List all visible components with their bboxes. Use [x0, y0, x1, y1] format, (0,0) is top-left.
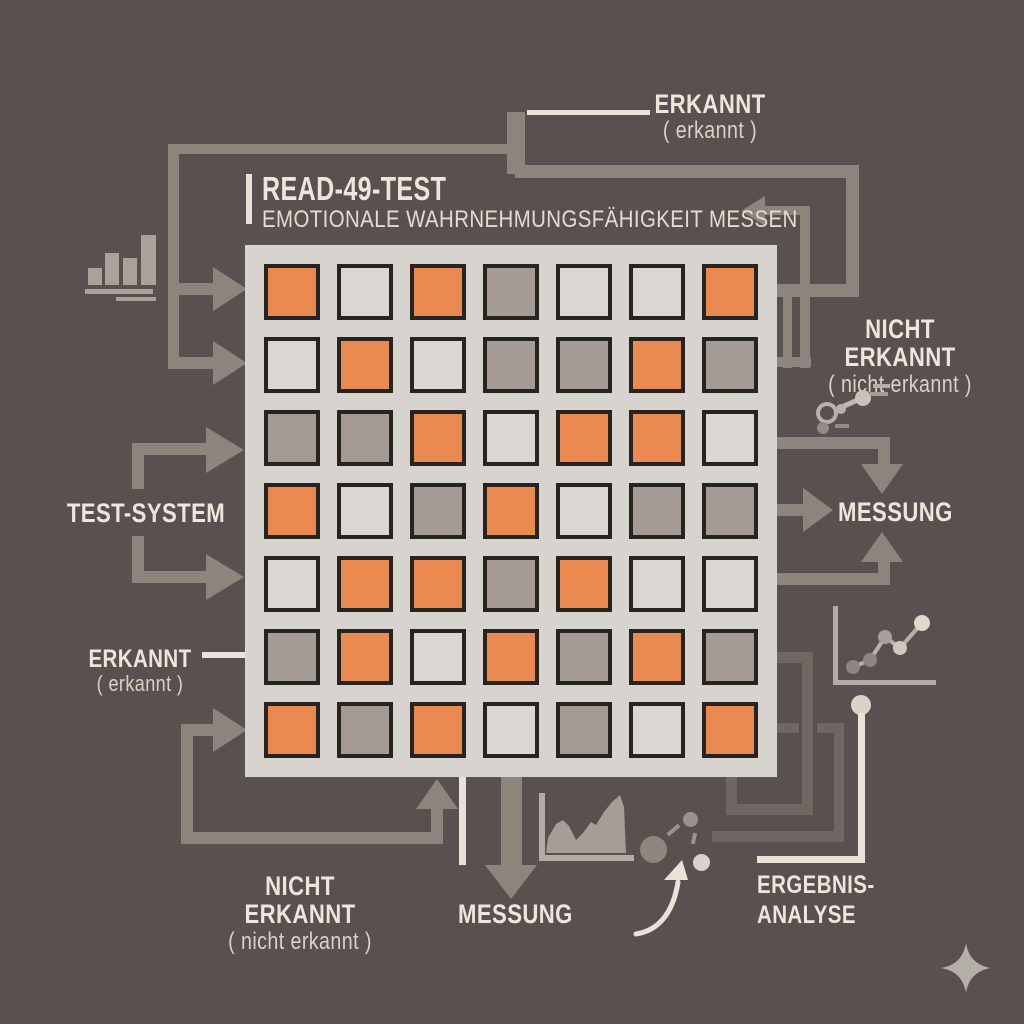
scatter-link-dot-big	[855, 390, 871, 406]
grid-cell-r1c6-light	[629, 264, 685, 320]
big-down-arrow-head	[485, 865, 537, 899]
bar-chart-bar	[105, 253, 119, 285]
connector-right-outer-vertical	[846, 165, 859, 297]
area-chart-icon	[536, 790, 636, 866]
arrow-into-grid-row1-head	[213, 267, 247, 311]
bar-chart-bar	[88, 268, 102, 285]
arrow-into-grid-row1-shaft	[179, 283, 213, 295]
grid-cell-r2c3-light	[410, 337, 466, 393]
molecule-bond-dash	[666, 824, 680, 837]
loop-arrow-into-grid-bottom-shaft	[431, 805, 443, 844]
title-block: READ-49-TEST EMOTIONALE WAHRNEHMUNGSFÄHI…	[262, 172, 782, 232]
molecule-icon	[636, 806, 716, 876]
grid-cell-r3c1-gray	[264, 410, 320, 466]
infographic-canvas: ERKANNT ( erkannt ) READ-49-TEST EMOTION…	[0, 0, 1024, 1024]
molecule-dot-big	[640, 836, 667, 863]
line-chart-icon	[833, 606, 943, 696]
grid-cell-r6c4-orange	[483, 629, 539, 685]
arrow-up-to-messung-head	[861, 532, 903, 562]
scatter-ring-dot	[816, 402, 838, 424]
grid-cell-r1c4-gray	[483, 264, 539, 320]
grid-cell-r6c7-gray	[702, 629, 758, 685]
label-erkannt-top-sub: ( erkannt )	[628, 118, 792, 143]
label-erkannt-left-main: ERKANNT	[58, 646, 222, 672]
label-messung-right: MESSUNG	[838, 498, 998, 526]
grid-cell-r7c3-orange	[410, 702, 466, 758]
grid-cell-r3c3-orange	[410, 410, 466, 466]
arrow-down-to-messung-head	[861, 464, 903, 494]
grid-cell-r7c6-light	[629, 702, 685, 758]
label-erkannt-left-sub: ( erkannt )	[58, 672, 222, 695]
label-ergebnis-line1: ERGEBNIS-	[757, 872, 937, 898]
grid-cell-r3c6-orange	[629, 410, 685, 466]
grid-cell-r5c6-light	[629, 556, 685, 612]
grid-cell-r6c6-orange	[629, 629, 685, 685]
label-test-system: TEST-SYSTEM	[46, 499, 246, 527]
connector-p2-top-a	[777, 723, 799, 733]
grid-cell-r4c3-gray	[410, 483, 466, 539]
label-erkannt-top-main: ERKANNT	[628, 90, 792, 118]
grid-cell-r2c6-orange	[629, 337, 685, 393]
grid-cell-r5c7-light	[702, 556, 758, 612]
scatter-dash	[835, 424, 849, 428]
grid-cell-r1c1-orange	[264, 264, 320, 320]
molecule-dot-light	[693, 854, 710, 871]
label-nicht-erkannt-right-main: NICHT ERKANNT	[818, 315, 982, 372]
ergebnis-connector-dot	[851, 695, 871, 715]
big-down-arrow-shaft	[501, 777, 522, 867]
bracket-upper-horizontal	[132, 443, 206, 455]
label-erkannt-top: ERKANNT ( erkannt )	[610, 90, 810, 144]
erkannt-left-leader-line	[202, 652, 246, 658]
connector-messung-top-horizontal	[777, 437, 890, 449]
grid-cell-r5c4-gray	[483, 556, 539, 612]
grid-cell-r2c4-gray	[483, 337, 539, 393]
loop-horizontal	[181, 832, 443, 844]
scatter-solid-dot	[817, 422, 829, 434]
connector-messung-top-vertical	[878, 437, 890, 467]
scatter-dash-top	[873, 384, 890, 388]
label-nicht-erkannt-bottom: NICHT ERKANNT ( nicht erkannt )	[190, 872, 410, 954]
grid-cell-r2c7-gray	[702, 337, 758, 393]
label-ergebnis-analyse: ERGEBNIS- ANALYSE	[757, 872, 977, 929]
label-ergebnis-line2: ANALYSE	[757, 902, 937, 928]
perception-grid	[245, 245, 777, 777]
label-nicht-erkannt-bottom-main: NICHT ERKANNT	[210, 872, 390, 929]
scatter-dash-mid	[870, 392, 888, 396]
grid-cell-r1c7-orange	[702, 264, 758, 320]
grid-cell-r4c1-orange	[264, 483, 320, 539]
grid-cell-r4c6-gray	[629, 483, 685, 539]
connector-messung-bottom-horizontal	[777, 573, 890, 585]
grid-cell-r2c5-gray	[556, 337, 612, 393]
bracket-upper-arrowhead	[206, 427, 244, 473]
arrow-into-grid-row2-head	[213, 341, 247, 385]
bracket-lower-horizontal	[132, 571, 206, 583]
arrow-right-to-messung-head	[803, 488, 833, 532]
ergebnis-connector-horizontal	[757, 856, 865, 863]
sparkle-icon	[940, 942, 992, 994]
arrow-into-grid-row2-shaft	[179, 357, 213, 369]
arrow-right-to-messung-shaft	[777, 504, 803, 516]
grid-cell-r5c1-light	[264, 556, 320, 612]
grid-cell-r5c2-orange	[337, 556, 393, 612]
grid-cell-r6c1-gray	[264, 629, 320, 685]
grid-cell-r7c7-orange	[702, 702, 758, 758]
connector-p1-bottom	[726, 804, 813, 815]
loop-vertical	[181, 724, 193, 844]
bar-chart-underline	[116, 297, 156, 301]
grid-cell-r5c3-orange	[410, 556, 466, 612]
label-messung-bottom-text: MESSUNG	[458, 900, 622, 928]
connector-topleft-vertical	[168, 144, 179, 369]
bracket-lower-arrowhead	[206, 554, 244, 600]
grid-cell-r7c4-light	[483, 702, 539, 758]
grid-cell-r2c1-light	[264, 337, 320, 393]
page-subtitle: EMOTIONALE WAHRNEHMUNGSFÄHIGKEIT MESSEN	[262, 207, 704, 232]
loop-arrow-into-grid-left-head	[213, 708, 247, 752]
connector-p1-stub	[726, 777, 737, 815]
label-test-system-text: TEST-SYSTEM	[64, 499, 228, 527]
molecule-dot-small	[683, 812, 698, 827]
connector-p2-vertical	[834, 723, 844, 842]
title-accent-bar	[246, 174, 252, 224]
ergebnis-connector-vertical	[858, 713, 865, 862]
label-messung-right-text: MESSUNG	[838, 498, 969, 526]
label-nicht-erkannt-bottom-sub: ( nicht erkannt )	[210, 929, 390, 954]
bar-chart-bar	[141, 235, 156, 285]
grid-cell-r3c7-light	[702, 410, 758, 466]
grid-cell-r3c5-orange	[556, 410, 612, 466]
grid-cell-r4c5-light	[556, 483, 612, 539]
grid-cell-r6c5-gray	[556, 629, 612, 685]
scatter-link-dot-small	[836, 404, 846, 414]
grid-cell-r3c2-gray	[337, 410, 393, 466]
grid-cell-r4c4-orange	[483, 483, 539, 539]
connector-p2-bottom	[712, 831, 844, 842]
grid-cell-r6c3-light	[410, 629, 466, 685]
grid-cell-r7c5-gray	[556, 702, 612, 758]
bar-chart-bar	[123, 258, 137, 285]
grid-cell-r3c4-light	[483, 410, 539, 466]
molecule-bond-dash	[691, 833, 697, 845]
grid-cell-r6c2-orange	[337, 629, 393, 685]
connector-p1-vertical	[802, 652, 813, 815]
bar-chart-icon	[85, 233, 160, 303]
grid-cell-r7c2-gray	[337, 702, 393, 758]
grid-cell-r1c2-light	[337, 264, 393, 320]
nicht-erkannt-bottom-leader-line	[459, 777, 466, 865]
grid-cell-r2c2-orange	[337, 337, 393, 393]
bar-chart-baseline	[85, 289, 153, 294]
grid-cell-r1c5-light	[556, 264, 612, 320]
grid-cell-r4c7-gray	[702, 483, 758, 539]
page-title: READ-49-TEST	[262, 172, 657, 207]
grid-cell-r1c3-orange	[410, 264, 466, 320]
connector-topleft-horizontal	[168, 144, 515, 154]
grid-cell-r7c1-orange	[264, 702, 320, 758]
scatter-link-icon	[810, 378, 896, 436]
grid-cell-r5c5-orange	[556, 556, 612, 612]
grid-cell-r4c2-light	[337, 483, 393, 539]
